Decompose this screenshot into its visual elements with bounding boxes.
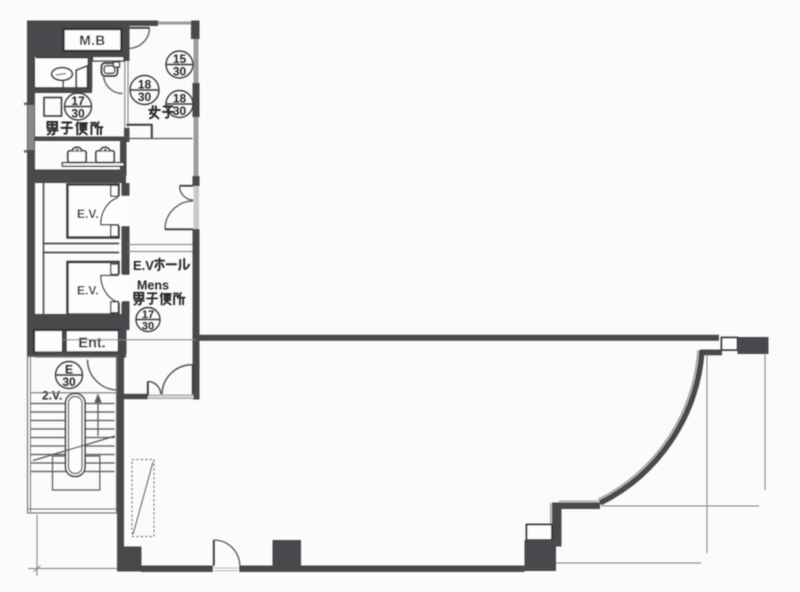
- svg-text:Mens: Mens: [137, 279, 169, 293]
- svg-text:30: 30: [173, 104, 187, 118]
- svg-text:2.V.: 2.V.: [42, 389, 62, 403]
- svg-text:17: 17: [142, 309, 154, 321]
- svg-text:30: 30: [138, 90, 152, 104]
- svg-text:30: 30: [142, 321, 154, 333]
- svg-text:30: 30: [71, 107, 85, 121]
- svg-text:M.B: M.B: [79, 33, 105, 48]
- svg-text:30: 30: [173, 65, 187, 79]
- svg-text:E.V.: E.V.: [77, 207, 99, 221]
- svg-text:30: 30: [62, 375, 76, 389]
- svg-text:E.V.: E.V.: [77, 284, 99, 298]
- svg-text:E.V: E.V: [133, 258, 154, 273]
- svg-text:Ent.: Ent.: [78, 336, 105, 352]
